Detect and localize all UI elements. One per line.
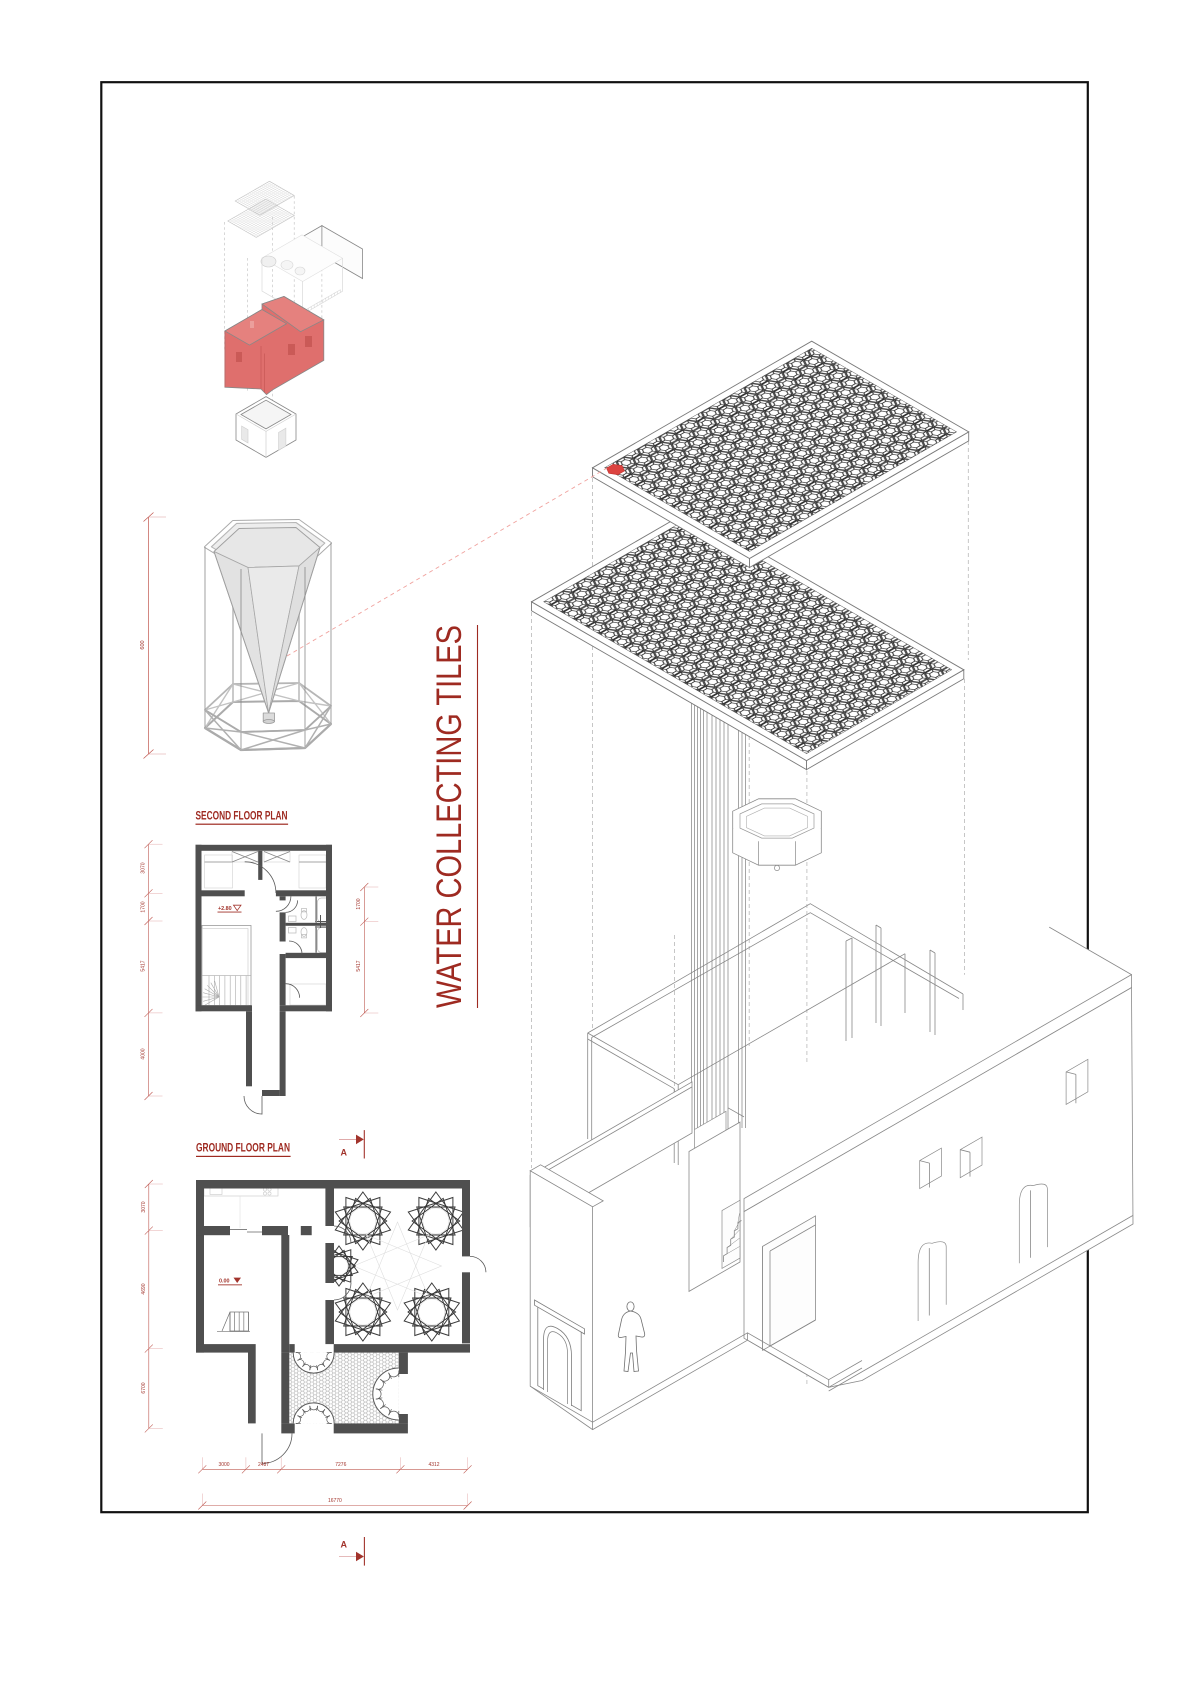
svg-text:7276: 7276 bbox=[335, 1462, 346, 1468]
svg-text:3070: 3070 bbox=[141, 862, 147, 873]
svg-text:1700: 1700 bbox=[356, 898, 362, 909]
svg-text:600: 600 bbox=[140, 640, 146, 649]
svg-text:4312: 4312 bbox=[428, 1462, 439, 1468]
svg-text:3070: 3070 bbox=[141, 1201, 147, 1212]
svg-text:16770: 16770 bbox=[328, 1498, 342, 1504]
svg-text:+2.80: +2.80 bbox=[218, 906, 232, 912]
svg-text:3000: 3000 bbox=[218, 1462, 229, 1468]
svg-text:1700: 1700 bbox=[141, 901, 147, 912]
svg-text:5417: 5417 bbox=[141, 960, 147, 971]
svg-text:0.00: 0.00 bbox=[219, 1278, 230, 1284]
svg-text:A: A bbox=[341, 1540, 348, 1550]
svg-text:4690: 4690 bbox=[141, 1283, 147, 1294]
svg-text:2487: 2487 bbox=[258, 1462, 269, 1468]
svg-text:6700: 6700 bbox=[141, 1382, 147, 1393]
svg-text:GROUND FLOOR PLAN: GROUND FLOOR PLAN bbox=[196, 1141, 290, 1155]
svg-text:A: A bbox=[341, 1148, 348, 1158]
svg-text:4000: 4000 bbox=[141, 1048, 147, 1059]
svg-text:WATER COLLECTING TILES: WATER COLLECTING TILES bbox=[429, 625, 469, 1008]
svg-text:SECOND FLOOR PLAN: SECOND FLOOR PLAN bbox=[196, 809, 288, 823]
svg-text:5417: 5417 bbox=[356, 960, 362, 971]
